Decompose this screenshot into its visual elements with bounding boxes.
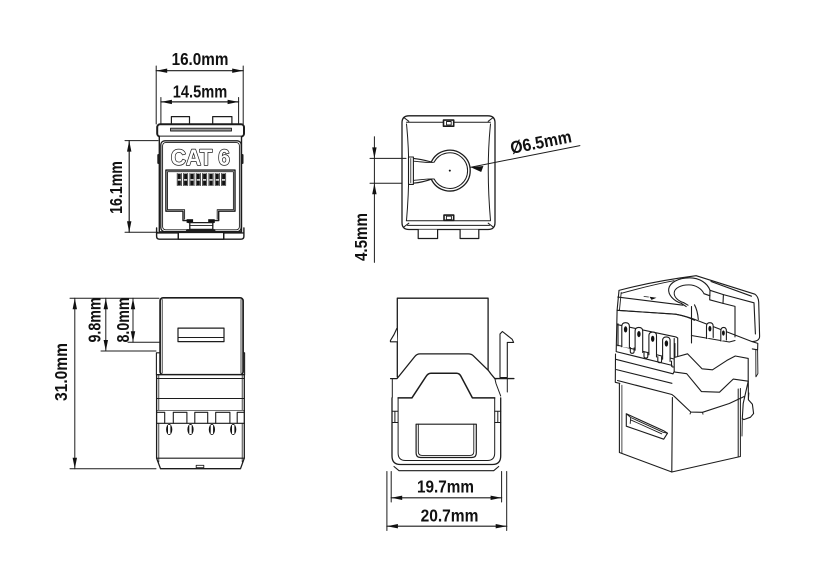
svg-text:31.0mm: 31.0mm [51,343,71,401]
svg-text:8.0mm: 8.0mm [113,298,133,343]
svg-text:4.5mm: 4.5mm [351,213,371,261]
svg-text:CAT 6: CAT 6 [171,145,230,170]
svg-text:16.1mm: 16.1mm [106,161,126,214]
svg-text:9.8mm: 9.8mm [85,298,105,343]
svg-text:19.7mm: 19.7mm [417,477,474,497]
svg-text:20.7mm: 20.7mm [421,506,479,526]
svg-text:14.5mm: 14.5mm [173,82,228,102]
svg-text:16.0mm: 16.0mm [172,49,229,69]
